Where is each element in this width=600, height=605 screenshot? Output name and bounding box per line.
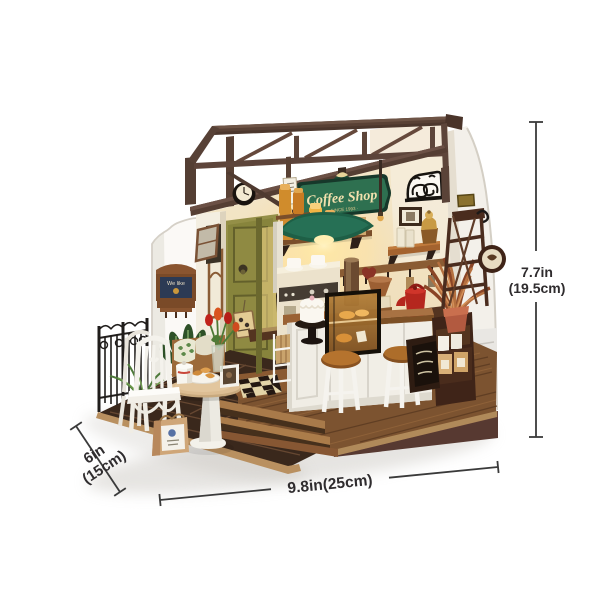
svg-text:7.7in: 7.7in <box>521 264 553 280</box>
svg-text:(19.5cm): (19.5cm) <box>509 280 566 296</box>
svg-text:We like: We like <box>167 281 185 287</box>
